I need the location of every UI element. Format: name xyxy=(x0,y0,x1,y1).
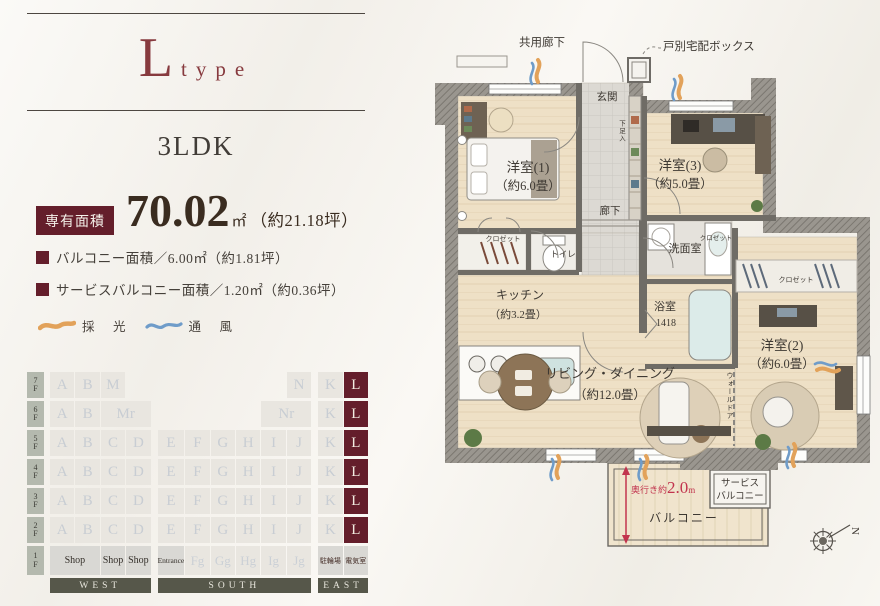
unit-cell-2F-H: H xyxy=(236,517,260,543)
washroom-label: 洗面室 xyxy=(669,241,702,255)
floor-label-5F: 5F xyxy=(27,430,44,456)
wall-door-label: ウォールドア xyxy=(726,372,734,420)
unit-cell-4F-E: E xyxy=(158,459,185,485)
room1-lamp xyxy=(489,108,513,132)
unit-cell-7F-N: N xyxy=(287,372,311,398)
unit-cell-3F-H: H xyxy=(236,488,260,514)
tv-board xyxy=(647,426,731,436)
closet-label: クロゼット xyxy=(486,234,521,243)
unit-cell-2F-L: L xyxy=(344,517,368,543)
service-balcony-box xyxy=(710,470,770,508)
living-label: リビング・ダイニング xyxy=(545,366,675,381)
ventilation-wave-icon xyxy=(145,319,183,333)
unit-cell-2F-I: I xyxy=(261,517,285,543)
unit-cell-2F-G: G xyxy=(211,517,235,543)
unit-cell-1F-電気室: 電気室 xyxy=(344,546,368,575)
plant-icon xyxy=(755,434,771,450)
living-size: （約12.0畳） xyxy=(574,387,646,402)
floor-label-1F: 1F xyxy=(27,546,44,575)
service-balcony-area-text: サービスバルコニー面積／1.20㎡（約0.36坪） xyxy=(56,279,345,299)
daylight-wave-icon xyxy=(38,319,76,333)
unit-cell-2F-B: B xyxy=(75,517,99,543)
unit-cell-6F-Mr: Mr xyxy=(101,401,151,427)
service-balcony-label2: バルコニー xyxy=(716,491,763,502)
unit-cell-3F-D: D xyxy=(126,488,150,514)
unit-cell-5F-H: H xyxy=(236,430,260,456)
direction-east: EAST xyxy=(318,578,368,593)
unit-cell-2F-A: A xyxy=(50,517,74,543)
kitchen-size: （約3.2畳） xyxy=(489,307,547,321)
unit-cell-4F-D: D xyxy=(126,459,150,485)
unit-cell-7F-K: K xyxy=(318,372,342,398)
unit-cell-4F-I: I xyxy=(261,459,285,485)
unit-cell-1F-Hg: Hg xyxy=(236,546,260,575)
unit-cell-3F-G: G xyxy=(211,488,235,514)
unit-cell-2F-D: D xyxy=(126,517,150,543)
room1-label: 洋室(1) xyxy=(507,159,550,175)
unit-cell-3F-L: L xyxy=(344,488,368,514)
bath-size: 1418 xyxy=(656,318,676,329)
unit-cell-5F-B: B xyxy=(75,430,99,456)
balcony-label: バルコニー xyxy=(649,511,719,525)
room1-size: （約6.0畳） xyxy=(495,178,561,193)
room2-label: 洋室(2) xyxy=(761,337,804,353)
type-letter: L xyxy=(139,27,173,89)
unit-cell-5F-E: E xyxy=(158,430,185,456)
unit-cell-4F-C: C xyxy=(101,459,125,485)
unit-cell-4F-K: K xyxy=(318,459,342,485)
unit-cell-4F-A: A xyxy=(50,459,74,485)
unit-cell-4F-J: J xyxy=(287,459,311,485)
daylight-label: 採 光 xyxy=(82,316,129,335)
unit-cell-2F-F: F xyxy=(185,517,209,543)
direction-west: WEST xyxy=(50,578,151,593)
page: Ltype 3LDK 専有面積 70.02 ㎡ （約21.18坪） バルコニー面… xyxy=(0,0,880,606)
unit-cell-3F-C: C xyxy=(101,488,125,514)
floor-label-2F: 2F xyxy=(27,517,44,543)
area-tsubo: （約21.18坪） xyxy=(251,207,359,231)
floor-grid: 7FABMNKL6FABMrNrKL5FABCDEFGHIJKL4FABCDEF… xyxy=(27,372,368,593)
unit-cell-3F-I: I xyxy=(261,488,285,514)
beanbag xyxy=(763,397,793,427)
delivery-box xyxy=(628,47,661,82)
balcony-area-text: バルコニー面積／6.00㎡（約1.81坪） xyxy=(56,247,289,267)
closet-label: クロゼット xyxy=(700,233,733,242)
floor-label-3F: 3F xyxy=(27,488,44,514)
unit-cell-5F-F: F xyxy=(185,430,209,456)
floorplan-svg: 共用廊下 戸別宅配ボックス xyxy=(433,20,880,602)
common-corridor-label: 共用廊下 xyxy=(519,35,565,49)
duct-space xyxy=(457,56,507,67)
unit-cell-5F-J: J xyxy=(287,430,311,456)
plant-icon xyxy=(464,429,482,447)
unit-cell-7F-L: L xyxy=(344,372,368,398)
plan-legend: 採 光 通 風 xyxy=(38,316,251,335)
compass-north-label: N xyxy=(849,527,861,535)
unit-cell-7F-B: B xyxy=(75,372,99,398)
unit-cell-7F-A: A xyxy=(50,372,74,398)
bullet-square-icon xyxy=(36,283,49,296)
ventilation-label: 通 風 xyxy=(189,316,236,335)
unit-cell-3F-F: F xyxy=(185,488,209,514)
unit-cell-3F-K: K xyxy=(318,488,342,514)
unit-cell-1F-Fg: Fg xyxy=(185,546,209,575)
unit-cell-1F-Ig: Ig xyxy=(261,546,285,575)
unit-cell-2F-E: E xyxy=(158,517,185,543)
floor-label-6F: 6F xyxy=(27,401,44,427)
room3-chair xyxy=(703,148,727,172)
service-balcony-label1: サービス xyxy=(721,478,759,489)
unit-cell-1F-Entrance: Entrance xyxy=(158,546,185,575)
unit-cell-2F-K: K xyxy=(318,517,342,543)
unit-cell-7F-M: M xyxy=(101,372,125,398)
balcony-areas xyxy=(608,463,770,546)
unit-cell-3F-B: B xyxy=(75,488,99,514)
room3-plant-icon xyxy=(751,200,763,212)
divider-under-title xyxy=(27,110,365,111)
unit-cell-2F-J: J xyxy=(287,517,311,543)
area-value: 70.02 xyxy=(126,188,230,234)
compass: N xyxy=(810,525,861,554)
unit-cell-6F-A: A xyxy=(50,401,74,427)
unit-cell-4F-G: G xyxy=(211,459,235,485)
unit-cell-2F-C: C xyxy=(101,517,125,543)
unit-cell-1F-Shop: Shop xyxy=(126,546,150,575)
unit-cell-1F-Jg: Jg xyxy=(287,546,311,575)
unit-cell-5F-C: C xyxy=(101,430,125,456)
entrance-label: 玄関 xyxy=(597,90,618,103)
unit-cell-1F-Shop: Shop xyxy=(101,546,125,575)
hallway-label: 廊下 xyxy=(600,204,621,217)
unit-cell-5F-A: A xyxy=(50,430,74,456)
unit-cell-5F-I: I xyxy=(261,430,285,456)
unit-cell-5F-L: L xyxy=(344,430,368,456)
room3-shelf xyxy=(755,116,771,174)
service-balcony-area-item: サービスバルコニー面積／1.20㎡（約0.36坪） xyxy=(36,279,345,299)
floor-label-7F: 7F xyxy=(27,372,44,398)
floor-label-4F: 4F xyxy=(27,459,44,485)
bullet-square-icon xyxy=(36,251,49,264)
type-word: type xyxy=(181,57,253,81)
toilet-label: トイレ xyxy=(550,249,576,259)
direction-south: SOUTH xyxy=(158,578,312,593)
unit-cell-6F-B: B xyxy=(75,401,99,427)
dining-chair xyxy=(479,371,501,393)
unit-cell-3F-E: E xyxy=(158,488,185,514)
kitchen-label: キッチン xyxy=(496,288,544,302)
exclusive-area-row: 専有面積 70.02 ㎡ （約21.18坪） xyxy=(36,188,358,235)
balcony-area-item: バルコニー面積／6.00㎡（約1.81坪） xyxy=(36,247,289,267)
unit-cell-1F-Gg: Gg xyxy=(211,546,235,575)
area-unit: ㎡ xyxy=(232,210,247,231)
unit-cell-4F-B: B xyxy=(75,459,99,485)
unit-cell-6F-L: L xyxy=(344,401,368,427)
room2-size: （約6.0畳） xyxy=(749,356,815,371)
closet-label: クロゼット xyxy=(779,275,814,284)
unit-cell-6F-Nr: Nr xyxy=(261,401,311,427)
unit-cell-4F-F: F xyxy=(185,459,209,485)
unit-cell-3F-J: J xyxy=(287,488,311,514)
divider-top xyxy=(27,13,365,14)
unit-cell-1F-Shop: Shop xyxy=(50,546,100,575)
room3-size: （約5.0畳） xyxy=(647,176,713,191)
plan-layout-label: 3LDK xyxy=(27,131,365,162)
dining-table xyxy=(497,354,553,410)
shoe-cabinet xyxy=(629,96,641,220)
unit-cell-5F-K: K xyxy=(318,430,342,456)
unit-cell-6F-K: K xyxy=(318,401,342,427)
room3-label: 洋室(3) xyxy=(659,157,702,173)
unit-cell-4F-L: L xyxy=(344,459,368,485)
unit-cell-1F-駐輪場: 駐輪場 xyxy=(318,546,342,575)
plan-title: Ltype xyxy=(27,30,365,86)
bath-label: 浴室 xyxy=(654,299,676,313)
entrance-door-arc xyxy=(583,42,623,82)
unit-cell-5F-D: D xyxy=(126,430,150,456)
bathtub xyxy=(689,290,731,360)
delivery-box-label: 戸別宅配ボックス xyxy=(663,39,755,53)
unit-cell-3F-A: A xyxy=(50,488,74,514)
unit-cell-5F-G: G xyxy=(211,430,235,456)
unit-cell-4F-H: H xyxy=(236,459,260,485)
area-badge: 専有面積 xyxy=(36,206,114,235)
